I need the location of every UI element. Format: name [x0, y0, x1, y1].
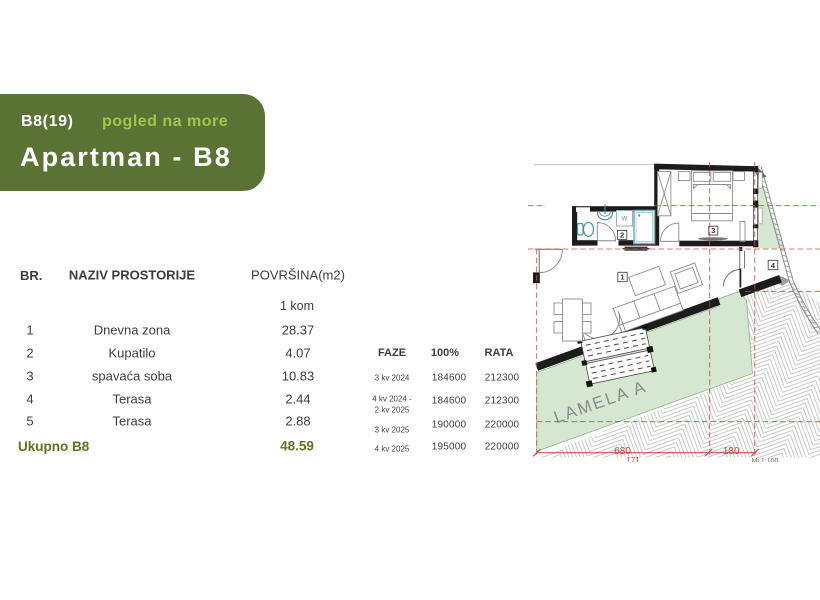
- svg-text:1: 1: [620, 273, 624, 282]
- svg-text:171: 171: [626, 456, 640, 462]
- svg-text:Mj 1:100: Mj 1:100: [752, 458, 779, 462]
- svg-text:W: W: [622, 217, 628, 223]
- svg-text:3: 3: [711, 226, 715, 235]
- svg-text:2: 2: [620, 231, 624, 240]
- svg-text:180: 180: [723, 446, 740, 457]
